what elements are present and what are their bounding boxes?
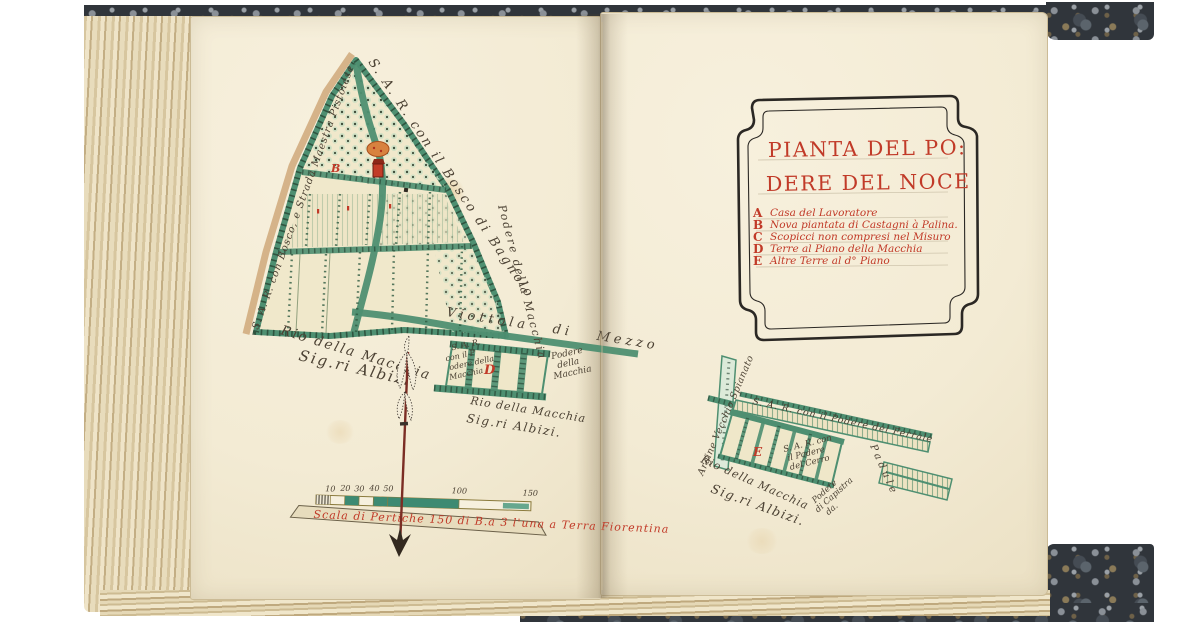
legend-text-d: Terre al Piano della Macchia	[770, 243, 922, 255]
title-cartouche: PIANTA DEL PO: DERE DEL NOCE A Casa del …	[738, 96, 978, 340]
cartouche-title-line1: PIANTA DEL PO:	[768, 135, 967, 162]
farmhouse	[373, 164, 383, 177]
small-building	[404, 188, 409, 193]
legend-text-b: Nova piantata di Castagni à Palina.	[769, 219, 958, 231]
compass-arrowhead	[389, 528, 411, 557]
scale-tick-20: 20	[339, 484, 350, 493]
threshing-floor-dot	[373, 147, 375, 149]
scale-tick-40: 40	[368, 484, 379, 493]
main-estate-plan: B D S. A. R. con il Bosco di Bagnolo S. …	[246, 54, 660, 440]
legend-text-c: Scopicci non compresi nel Misuro	[770, 231, 951, 243]
parcel-e-plan: E Argine Vecchio Spianato S. A. R. con i…	[695, 354, 952, 529]
map-marker-b: B	[330, 162, 340, 175]
legend-text-a: Casa del Lavoratore	[770, 207, 877, 219]
scale-seg-teal-short	[503, 503, 529, 509]
scale-tick-30: 30	[354, 484, 364, 493]
map-marker-d: D	[483, 363, 496, 378]
farmhouse-roof	[372, 159, 385, 164]
threshing-floor-dot	[380, 150, 382, 152]
strip-fields	[282, 194, 464, 248]
legend-text-e: Altre Terre al d° Piano	[769, 255, 890, 267]
scale-seg-teal	[345, 496, 360, 505]
scale-tick-10: 10	[325, 484, 335, 493]
cartouche-title-line2: DERE DEL NOCE	[766, 169, 971, 196]
manuscript-atlas-photo: B D S. A. R. con il Bosco di Bagnolo S. …	[0, 0, 1200, 628]
map-marker-e: E	[752, 445, 763, 459]
scale-seg-hatch	[316, 495, 330, 504]
legend-key-e: E	[753, 254, 762, 268]
scale-seg-teal	[373, 497, 388, 506]
threshing-floor	[367, 142, 389, 157]
scale-tick-50: 50	[383, 484, 393, 493]
cartouche-legend: A Casa del Lavoratore B Nova piantata di…	[752, 206, 958, 268]
map-artwork: B D S. A. R. con il Bosco di Bagnolo S. …	[0, 0, 1200, 628]
scale-bar: 10 20 30 40 50 100 150 Scala di Pertiche…	[290, 481, 670, 539]
scale-tick-100: 100	[452, 486, 468, 495]
scale-tick-150: 150	[523, 488, 539, 497]
compass-collar	[400, 422, 408, 426]
